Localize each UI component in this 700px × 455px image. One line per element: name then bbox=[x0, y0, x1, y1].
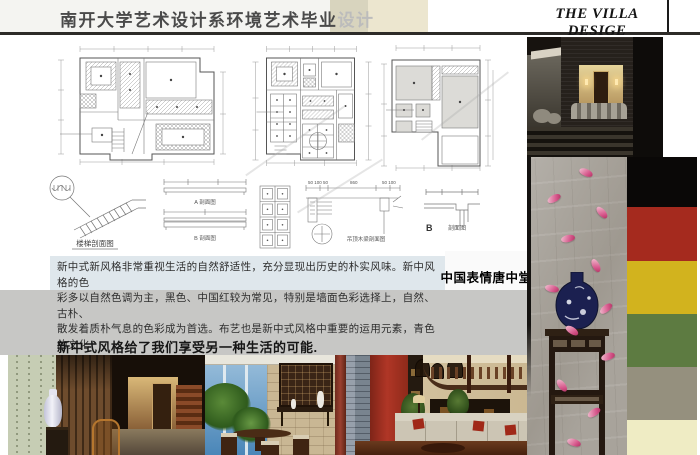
presentation-board: 南开大学艺术设计系环境艺术毕业设计 THE VILLA DESIGE bbox=[0, 0, 700, 455]
balcony-ceiling bbox=[423, 355, 527, 363]
wall-sconce bbox=[615, 79, 618, 85]
beam-a-label: A 剖面图 bbox=[194, 198, 216, 206]
swatch-gold-yellow bbox=[627, 261, 697, 314]
page-title-main: 南开大学艺术设计系环境艺术毕业 bbox=[60, 11, 338, 30]
swatch-chinese-red bbox=[627, 207, 697, 261]
stone-balustrade bbox=[571, 103, 627, 119]
beam-elevation-drawings: A 剖面图 B 剖面图 bbox=[158, 176, 255, 248]
villa-entrance-photo bbox=[527, 37, 663, 157]
stair-section-drawing: 楼梯剖面图 bbox=[40, 172, 152, 254]
stone-drum bbox=[547, 113, 561, 124]
red-pillow bbox=[505, 425, 517, 436]
petal bbox=[595, 205, 610, 220]
b-detail-label: 剖面图 bbox=[448, 224, 466, 232]
courtyard-dining-photo bbox=[205, 355, 355, 455]
tang-hall-caption: 中国表情唐中堂 bbox=[445, 251, 527, 290]
coffee-table bbox=[421, 443, 465, 453]
logo-text: THE VILLA DESIGE bbox=[527, 6, 667, 40]
hallway-stairs bbox=[176, 385, 202, 429]
floor-lamp bbox=[413, 395, 425, 403]
vase-on-stand bbox=[539, 272, 615, 455]
dining-chair bbox=[293, 435, 309, 455]
petal bbox=[589, 258, 602, 274]
coffer-grid-drawing bbox=[258, 184, 293, 251]
ceiling-plan-1 bbox=[52, 42, 236, 170]
hallway-interior-photo bbox=[8, 355, 205, 455]
paragraph-line: 彩多以自然色调为主，黑色、中国红较为常见，特别是墙面色彩选择上，自然、古朴、 bbox=[57, 291, 441, 322]
swatch-green bbox=[627, 314, 697, 367]
console-leg bbox=[327, 412, 329, 426]
gray-brick-corner bbox=[346, 355, 355, 455]
wooden-stand bbox=[545, 329, 609, 455]
floor-plan-3 bbox=[376, 40, 498, 172]
railing-post bbox=[467, 355, 471, 393]
page-title: 南开大学艺术设计系环境艺术毕业设计 bbox=[60, 6, 375, 31]
page-title-accent: 设计 bbox=[338, 11, 375, 30]
joist-section-drawing: 50 100 50 860 50 100 吊顶木梁剖面图 bbox=[298, 176, 408, 252]
porcelain-vase-icon bbox=[317, 391, 324, 408]
hallway-floor bbox=[112, 429, 205, 455]
dining-chair bbox=[261, 441, 279, 455]
wooden-chair bbox=[92, 419, 120, 455]
hallway-view bbox=[112, 355, 205, 455]
wall-sconce bbox=[585, 79, 588, 85]
swatch-black bbox=[627, 157, 697, 207]
white-vase-icon bbox=[44, 395, 62, 427]
joist-dim-mid: 860 bbox=[350, 180, 358, 185]
right-margin bbox=[663, 37, 700, 157]
molding-detail-drawing: B 剖面图 bbox=[418, 184, 485, 237]
red-pillar bbox=[335, 355, 346, 455]
console-leg bbox=[281, 412, 283, 426]
paragraph-line: 新中式新风格非常重视生活的自然舒适性，充分显现出历史的朴实风味。新中风格的色 bbox=[57, 260, 441, 291]
petal bbox=[578, 167, 594, 178]
porcelain-vase-icon bbox=[291, 399, 296, 409]
railing-post bbox=[507, 355, 511, 393]
balcony-balusters bbox=[431, 367, 527, 379]
marble-edge-shadow bbox=[527, 157, 531, 397]
joist-dim-right: 50 100 bbox=[382, 180, 396, 185]
console-table bbox=[277, 407, 333, 412]
beam-b-label: B 剖面图 bbox=[194, 234, 216, 242]
red-pillow bbox=[412, 418, 424, 429]
hallway-door bbox=[152, 383, 172, 431]
living-room-photo bbox=[355, 355, 527, 455]
red-pillow bbox=[473, 420, 485, 431]
stair-label: 楼梯剖面图 bbox=[76, 238, 114, 248]
joist-dim-left: 50 100 50 bbox=[308, 180, 329, 185]
b-detail-letter: B bbox=[426, 223, 433, 233]
swatch-cream bbox=[627, 420, 697, 455]
swatch-warm-gray bbox=[627, 367, 697, 420]
section-heading: 新中式风格给了我们享受另一种生活的可能. bbox=[57, 337, 318, 356]
petal bbox=[546, 192, 562, 205]
petal bbox=[560, 233, 575, 243]
header-beige-block-light bbox=[368, 0, 428, 32]
vase-pedestal bbox=[46, 427, 68, 455]
logo-divider bbox=[667, 0, 669, 32]
carved-wood-panel bbox=[279, 363, 333, 407]
porcelain-vase-icon bbox=[556, 272, 598, 329]
joist-label: 吊顶木梁剖面图 bbox=[347, 235, 386, 243]
dining-chair bbox=[221, 433, 237, 455]
entrance-dark-edge bbox=[633, 37, 663, 157]
color-palette bbox=[627, 157, 697, 455]
marble-strip bbox=[527, 157, 627, 455]
gray-brick-column bbox=[355, 355, 370, 455]
ceiling-plan-2 bbox=[243, 42, 381, 170]
